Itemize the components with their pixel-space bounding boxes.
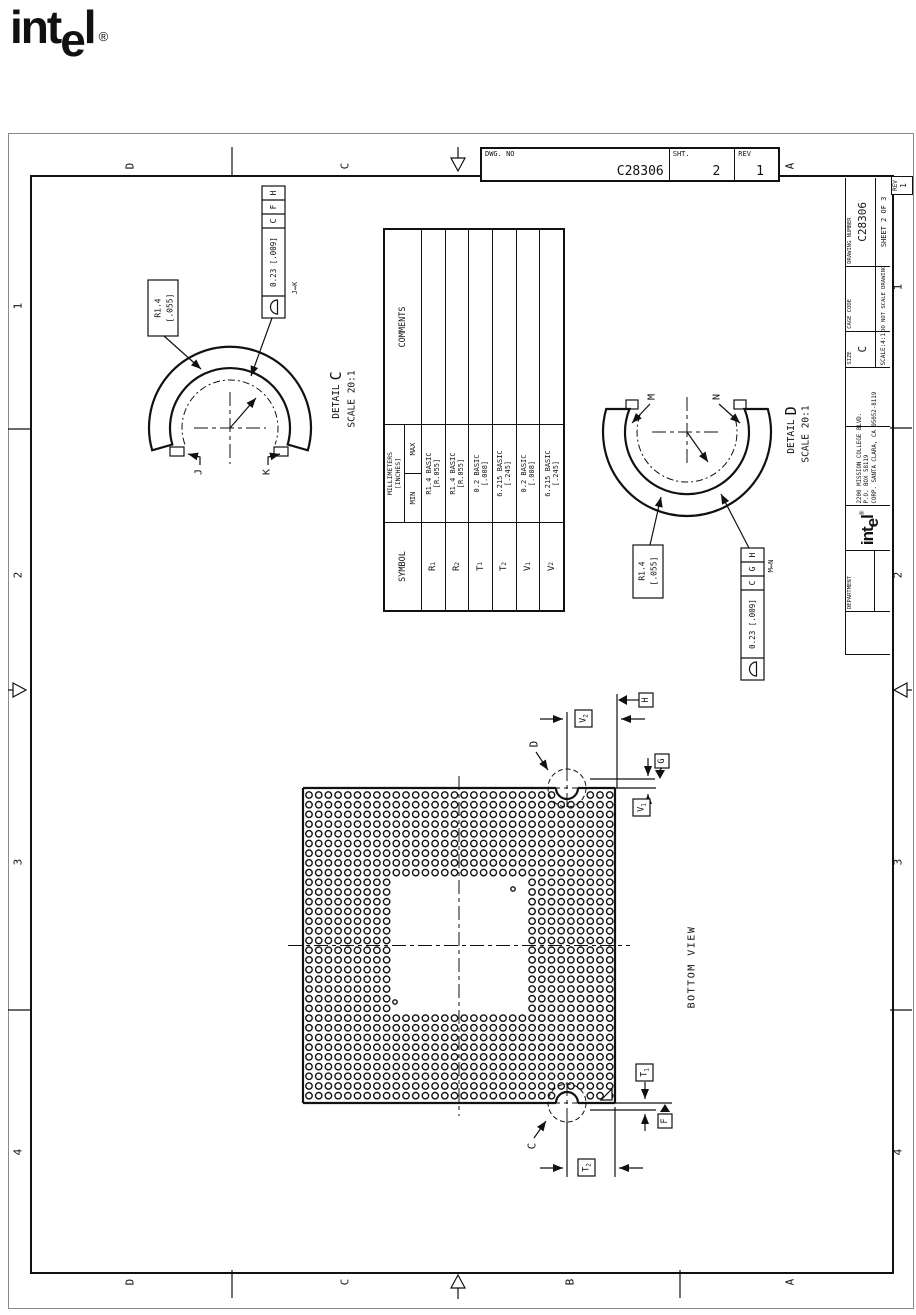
line-art-layer: D C A D C B A 1 2 3 4 1 2 3 4 R — [0, 0, 916, 1315]
datum-flag-icon — [655, 770, 665, 779]
center-mark-right — [894, 683, 907, 697]
datum-f: F — [269, 204, 278, 209]
zone-bottom-c: C — [339, 1279, 352, 1286]
datum-c: C — [269, 218, 278, 223]
cavity-dot — [511, 887, 515, 891]
datum-flag-icon — [660, 1104, 670, 1112]
zone-left-4: 4 — [12, 1148, 25, 1155]
zone-top-d: D — [124, 163, 137, 170]
cavity-dot — [393, 1000, 397, 1004]
end-label-j: J — [194, 469, 205, 475]
end-label-k: K — [262, 469, 273, 475]
zone-left-2: 2 — [12, 572, 25, 579]
center-mark-bottom — [451, 1275, 465, 1288]
zone-top-a: A — [784, 162, 797, 169]
radius-callout-mm: R1.4 — [638, 561, 647, 580]
end-label-n: N — [712, 394, 723, 400]
datum-c: C — [748, 580, 757, 585]
detail-d-pointer: D — [528, 741, 541, 748]
between-j-k: J↔K — [291, 281, 299, 294]
detail-d-scale: SCALE 20:1 — [801, 405, 812, 462]
zone-labels: D C A D C B A 1 2 3 4 1 2 3 4 — [12, 162, 905, 1285]
zone-bottom-b: B — [564, 1278, 577, 1285]
drawing-sheet-page: intel® DWG. NO C28306 SHT. 2 REV 1 REV 1 — [0, 0, 916, 1315]
detail-c-title: DETAILC — [327, 371, 345, 418]
zone-bottom-d: D — [124, 1279, 137, 1286]
zone-right-4: 4 — [892, 1148, 905, 1155]
profile-tolerance: 0.23 [.009] — [748, 599, 757, 649]
zone-left-1: 1 — [12, 303, 25, 310]
detail-d-title: DETAILD — [782, 406, 800, 453]
bga-bottom-view: V2 H G V1 D T1 — [288, 693, 698, 1177]
datum-h-flag: H — [641, 697, 651, 702]
zone-right-2: 2 — [892, 572, 905, 579]
between-m-n: M↔N — [767, 560, 775, 573]
bottom-dimensions: T1 F T2 C — [526, 1064, 673, 1177]
datum-flag-icon — [618, 695, 627, 705]
feature-control-frame-c: H F C 0.23 [.009] — [251, 186, 285, 376]
center-mark-top — [451, 158, 465, 171]
detail-c-scale: SCALE 20:1 — [347, 370, 358, 427]
zone-bottom-a: A — [784, 1278, 797, 1285]
zone-right-3: 3 — [892, 859, 905, 866]
datum-g-flag: G — [657, 758, 667, 763]
zone-top-c: C — [339, 163, 352, 170]
bottom-view-caption: BOTTOM VIEW — [687, 926, 698, 1009]
zone-left-3: 3 — [12, 859, 25, 866]
profile-tolerance: 0.23 [.009] — [269, 237, 278, 287]
radius-callout-mm: R1.4 — [154, 298, 163, 317]
detail-c-pointer: C — [526, 1143, 539, 1150]
datum-h: H — [269, 190, 278, 195]
radius-callout-in: [.055] — [650, 557, 659, 586]
datum-g: G — [748, 566, 757, 571]
feature-control-frame-d: H G C 0.23 [.009] — [721, 494, 764, 680]
detail-c-view: R1.4 [.055] H F C 0.23 [.009] J↔K J K — [148, 186, 358, 475]
zone-right-1: 1 — [892, 284, 905, 291]
datum-f-flag: F — [660, 1118, 670, 1123]
radius-callout-in: [.055] — [166, 294, 175, 323]
end-label-m: M — [647, 394, 658, 400]
datum-h: H — [748, 552, 757, 557]
center-mark-left — [13, 683, 26, 697]
detail-d-view: M N R1.4 [.055] H G C 0.23 [.009] — [603, 394, 812, 680]
zone-marks — [8, 147, 912, 1299]
